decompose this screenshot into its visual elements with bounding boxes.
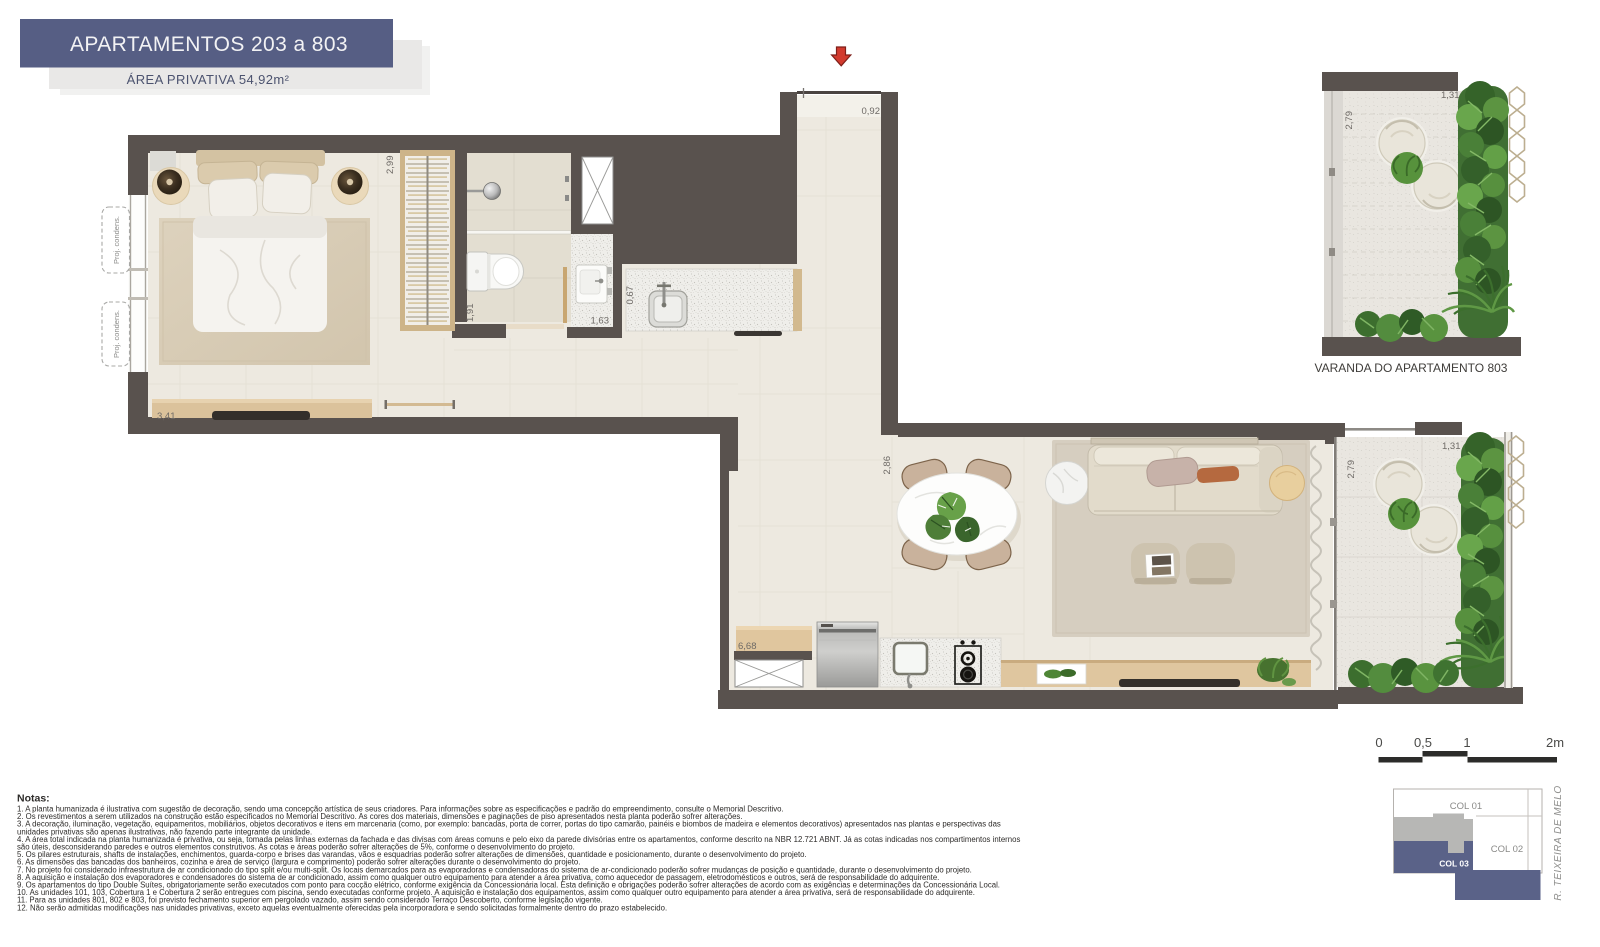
svg-text:0,92: 0,92 <box>862 106 881 117</box>
svg-text:0,67: 0,67 <box>625 286 636 305</box>
svg-text:12. Não serão admitidas modifi: 12. Não serão admitidas modificações nas… <box>17 903 667 912</box>
svg-text:Proj. condens.: Proj. condens. <box>112 310 121 358</box>
svg-text:2,79: 2,79 <box>1346 460 1357 479</box>
svg-text:6,68: 6,68 <box>738 641 757 652</box>
svg-text:2,99: 2,99 <box>385 156 396 175</box>
svg-text:COL 02: COL 02 <box>1491 844 1523 855</box>
svg-text:COL 01: COL 01 <box>1450 801 1482 812</box>
svg-text:0,5: 0,5 <box>1414 735 1432 750</box>
svg-text:3,41: 3,41 <box>157 411 176 422</box>
svg-text:Notas:: Notas: <box>17 793 50 805</box>
svg-text:Proj. condens.: Proj. condens. <box>112 216 121 264</box>
svg-text:2m: 2m <box>1546 735 1564 750</box>
svg-text:1: 1 <box>1463 735 1470 750</box>
svg-text:1,91: 1,91 <box>465 304 476 323</box>
svg-text:1,31: 1,31 <box>1441 90 1460 101</box>
svg-text:1,63: 1,63 <box>591 316 610 327</box>
svg-text:0: 0 <box>1375 735 1382 750</box>
svg-text:COL 03: COL 03 <box>1439 859 1469 869</box>
svg-text:R. TEIXEIRA DE MELO: R. TEIXEIRA DE MELO <box>1553 785 1564 900</box>
svg-text:2,86: 2,86 <box>882 456 893 475</box>
svg-text:ÁREA PRIVATIVA 54,92m²: ÁREA PRIVATIVA 54,92m² <box>127 72 290 87</box>
svg-text:2,79: 2,79 <box>1344 111 1355 130</box>
svg-text:APARTAMENTOS 203 a 803: APARTAMENTOS 203 a 803 <box>70 33 348 56</box>
svg-text:VARANDA DO APARTAMENTO 803: VARANDA DO APARTAMENTO 803 <box>1315 361 1508 375</box>
svg-text:1,31: 1,31 <box>1442 441 1461 452</box>
